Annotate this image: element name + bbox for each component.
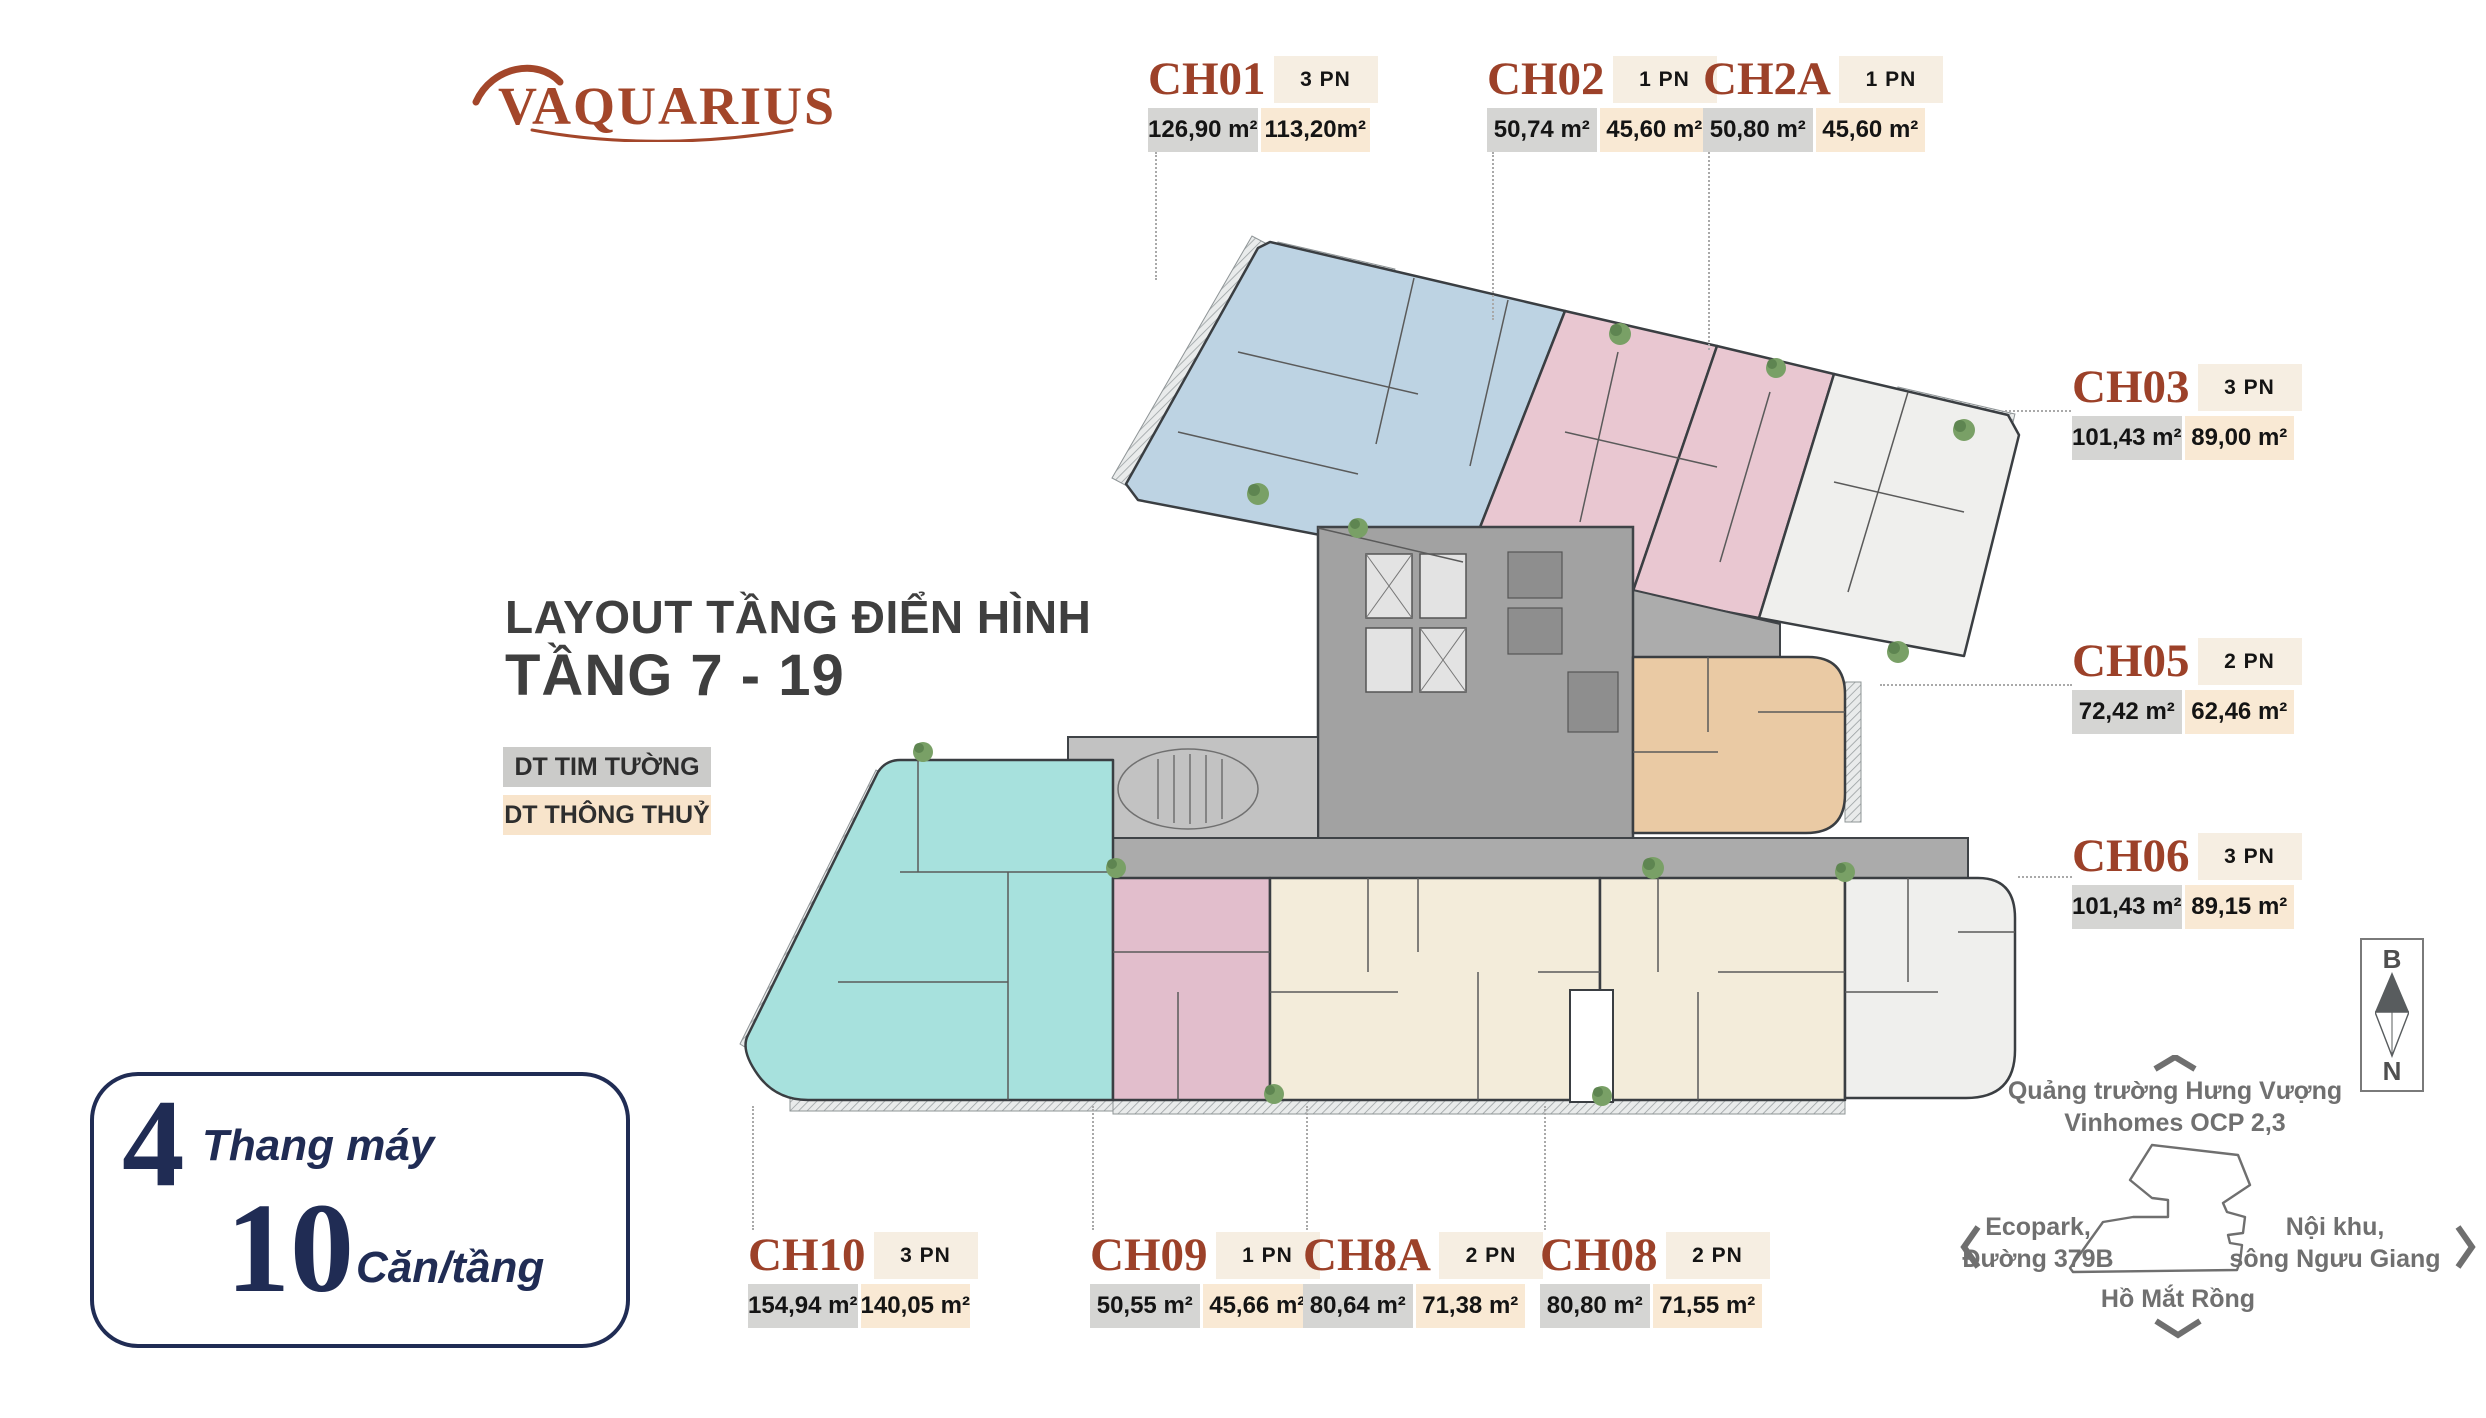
legend-gross-area: DT TIM TƯỜNG (503, 747, 711, 787)
area-gross: 72,42 m² (2072, 690, 2182, 734)
leader-line (752, 1106, 754, 1230)
apt-label-CH06[interactable]: CH06 3 PN 101,43 m² 89,15 m² (2072, 833, 2294, 929)
floor-plan (718, 232, 2028, 1172)
wing-notch (1570, 990, 1613, 1102)
minimap-east-line1: Nội khu, (2286, 1213, 2385, 1241)
unit-CH09[interactable] (1113, 878, 1270, 1100)
apt-code: CH05 (2072, 638, 2190, 685)
apt-label-CH10[interactable]: CH10 3 PN 154,94 m² 140,05 m² (748, 1232, 970, 1328)
leader-line (1492, 152, 1494, 320)
area-net: 89,15 m² (2185, 885, 2295, 929)
area-net: 71,38 m² (1416, 1284, 1526, 1328)
minimap-west-line1: Ecopark, (1985, 1213, 2091, 1241)
apt-code: CH2A (1703, 56, 1831, 103)
apt-code: CH10 (748, 1232, 866, 1279)
unit-CH8A[interactable] (1270, 878, 1600, 1100)
apt-label-CH03[interactable]: CH03 3 PN 101,43 m² 89,00 m² (2072, 364, 2294, 460)
leader-line (1092, 1106, 1094, 1230)
apt-code: CH06 (2072, 833, 2190, 880)
bedroom-chip: 2 PN (1666, 1232, 1770, 1279)
bedroom-chip: 3 PN (2198, 833, 2302, 880)
leader-line (1708, 152, 1710, 350)
chevron-right-icon (2458, 1227, 2472, 1267)
apt-code: CH03 (2072, 364, 2190, 411)
unit-CH10[interactable] (746, 760, 1113, 1100)
bedroom-chip: 2 PN (1439, 1232, 1543, 1279)
apt-label-CH09[interactable]: CH09 1 PN 50,55 m² 45,66 m² (1090, 1232, 1312, 1328)
leader-line (1306, 1106, 1308, 1230)
minimap-north-line2: Vinhomes OCP 2,3 (2064, 1109, 2285, 1137)
minimap-south-label: Hồ Mắt Rồng (2101, 1283, 2255, 1313)
unit-CH08[interactable] (1600, 878, 1845, 1100)
bedroom-chip: 2 PN (2198, 638, 2302, 685)
apt-label-CH01[interactable]: CH01 3 PN 126,90 m² 113,20m² (1148, 56, 1370, 152)
chevron-up-icon (2155, 1057, 2195, 1069)
area-gross: 101,43 m² (2072, 416, 2182, 460)
area-gross: 126,90 m² (1148, 108, 1258, 152)
elevator-count: 4 (122, 1082, 185, 1207)
area-net: 45,66 m² (1203, 1284, 1313, 1328)
compass-north-label: B (2383, 946, 2402, 972)
legend-net-area: DT THÔNG THUỶ (503, 795, 711, 835)
unit-CH05[interactable] (1633, 657, 1845, 833)
area-gross: 50,80 m² (1703, 108, 1813, 152)
area-gross: 50,74 m² (1487, 108, 1597, 152)
minimap-east-line2: sông Ngưu Giang (2229, 1245, 2440, 1273)
apt-label-CH2A[interactable]: CH2A 1 PN 50,80 m² 45,60 m² (1703, 56, 1925, 152)
area-net: 89,00 m² (2185, 416, 2295, 460)
units-label: Căn/tầng (356, 1246, 544, 1290)
bedroom-chip: 1 PN (1839, 56, 1943, 103)
bedroom-chip: 1 PN (1613, 56, 1717, 103)
units-count: 10 (226, 1184, 354, 1312)
brand-logo: VAQUARIUS (462, 50, 842, 142)
logo-text: VAQUARIUS (498, 76, 836, 136)
area-gross: 80,80 m² (1540, 1284, 1650, 1328)
apt-code: CH09 (1090, 1232, 1208, 1279)
location-minimap: Quảng trường Hưng Vượng Vinhomes OCP 2,3… (1950, 1055, 2486, 1350)
chevron-down-icon (2156, 1321, 2200, 1335)
apt-code: CH08 (1540, 1232, 1658, 1279)
area-net: 113,20m² (1261, 108, 1371, 152)
poster-canvas: VAQUARIUS LAYOUT TẦNG ĐIỂN HÌNH TẦNG 7 -… (0, 0, 2486, 1418)
area-net: 62,46 m² (2185, 690, 2295, 734)
apt-code: CH02 (1487, 56, 1605, 103)
building-stats-box: 4 Thang máy 10 Căn/tầng (90, 1072, 630, 1348)
apt-code: CH01 (1148, 56, 1266, 103)
elevator-label: Thang máy (202, 1124, 434, 1168)
apt-label-CH8A[interactable]: CH8A 2 PN 80,64 m² 71,38 m² (1303, 1232, 1525, 1328)
area-net: 45,60 m² (1816, 108, 1926, 152)
bedroom-chip: 3 PN (2198, 364, 2302, 411)
area-gross: 154,94 m² (748, 1284, 858, 1328)
compass-needle-icon (2375, 972, 2409, 1058)
apt-label-CH08[interactable]: CH08 2 PN 80,80 m² 71,55 m² (1540, 1232, 1762, 1328)
leader-line (1544, 1106, 1546, 1230)
leader-line (2005, 410, 2071, 412)
area-gross: 101,43 m² (2072, 885, 2182, 929)
area-net: 140,05 m² (861, 1284, 971, 1328)
apt-label-CH02[interactable]: CH02 1 PN 50,74 m² 45,60 m² (1487, 56, 1709, 152)
minimap-west-line2: Đường 379B (1962, 1245, 2113, 1273)
area-gross: 80,64 m² (1303, 1284, 1413, 1328)
apt-label-CH05[interactable]: CH05 2 PN 72,42 m² 62,46 m² (2072, 638, 2294, 734)
apt-code: CH8A (1303, 1232, 1431, 1279)
minimap-north-line1: Quảng trường Hưng Vượng (2008, 1077, 2342, 1105)
leader-line (1880, 684, 2072, 686)
area-net: 71,55 m² (1653, 1284, 1763, 1328)
leader-line (1155, 152, 1157, 280)
area-gross: 50,55 m² (1090, 1284, 1200, 1328)
bedroom-chip: 3 PN (874, 1232, 978, 1279)
leader-line (2018, 876, 2072, 878)
area-net: 45,60 m² (1600, 108, 1710, 152)
bedroom-chip: 3 PN (1274, 56, 1378, 103)
